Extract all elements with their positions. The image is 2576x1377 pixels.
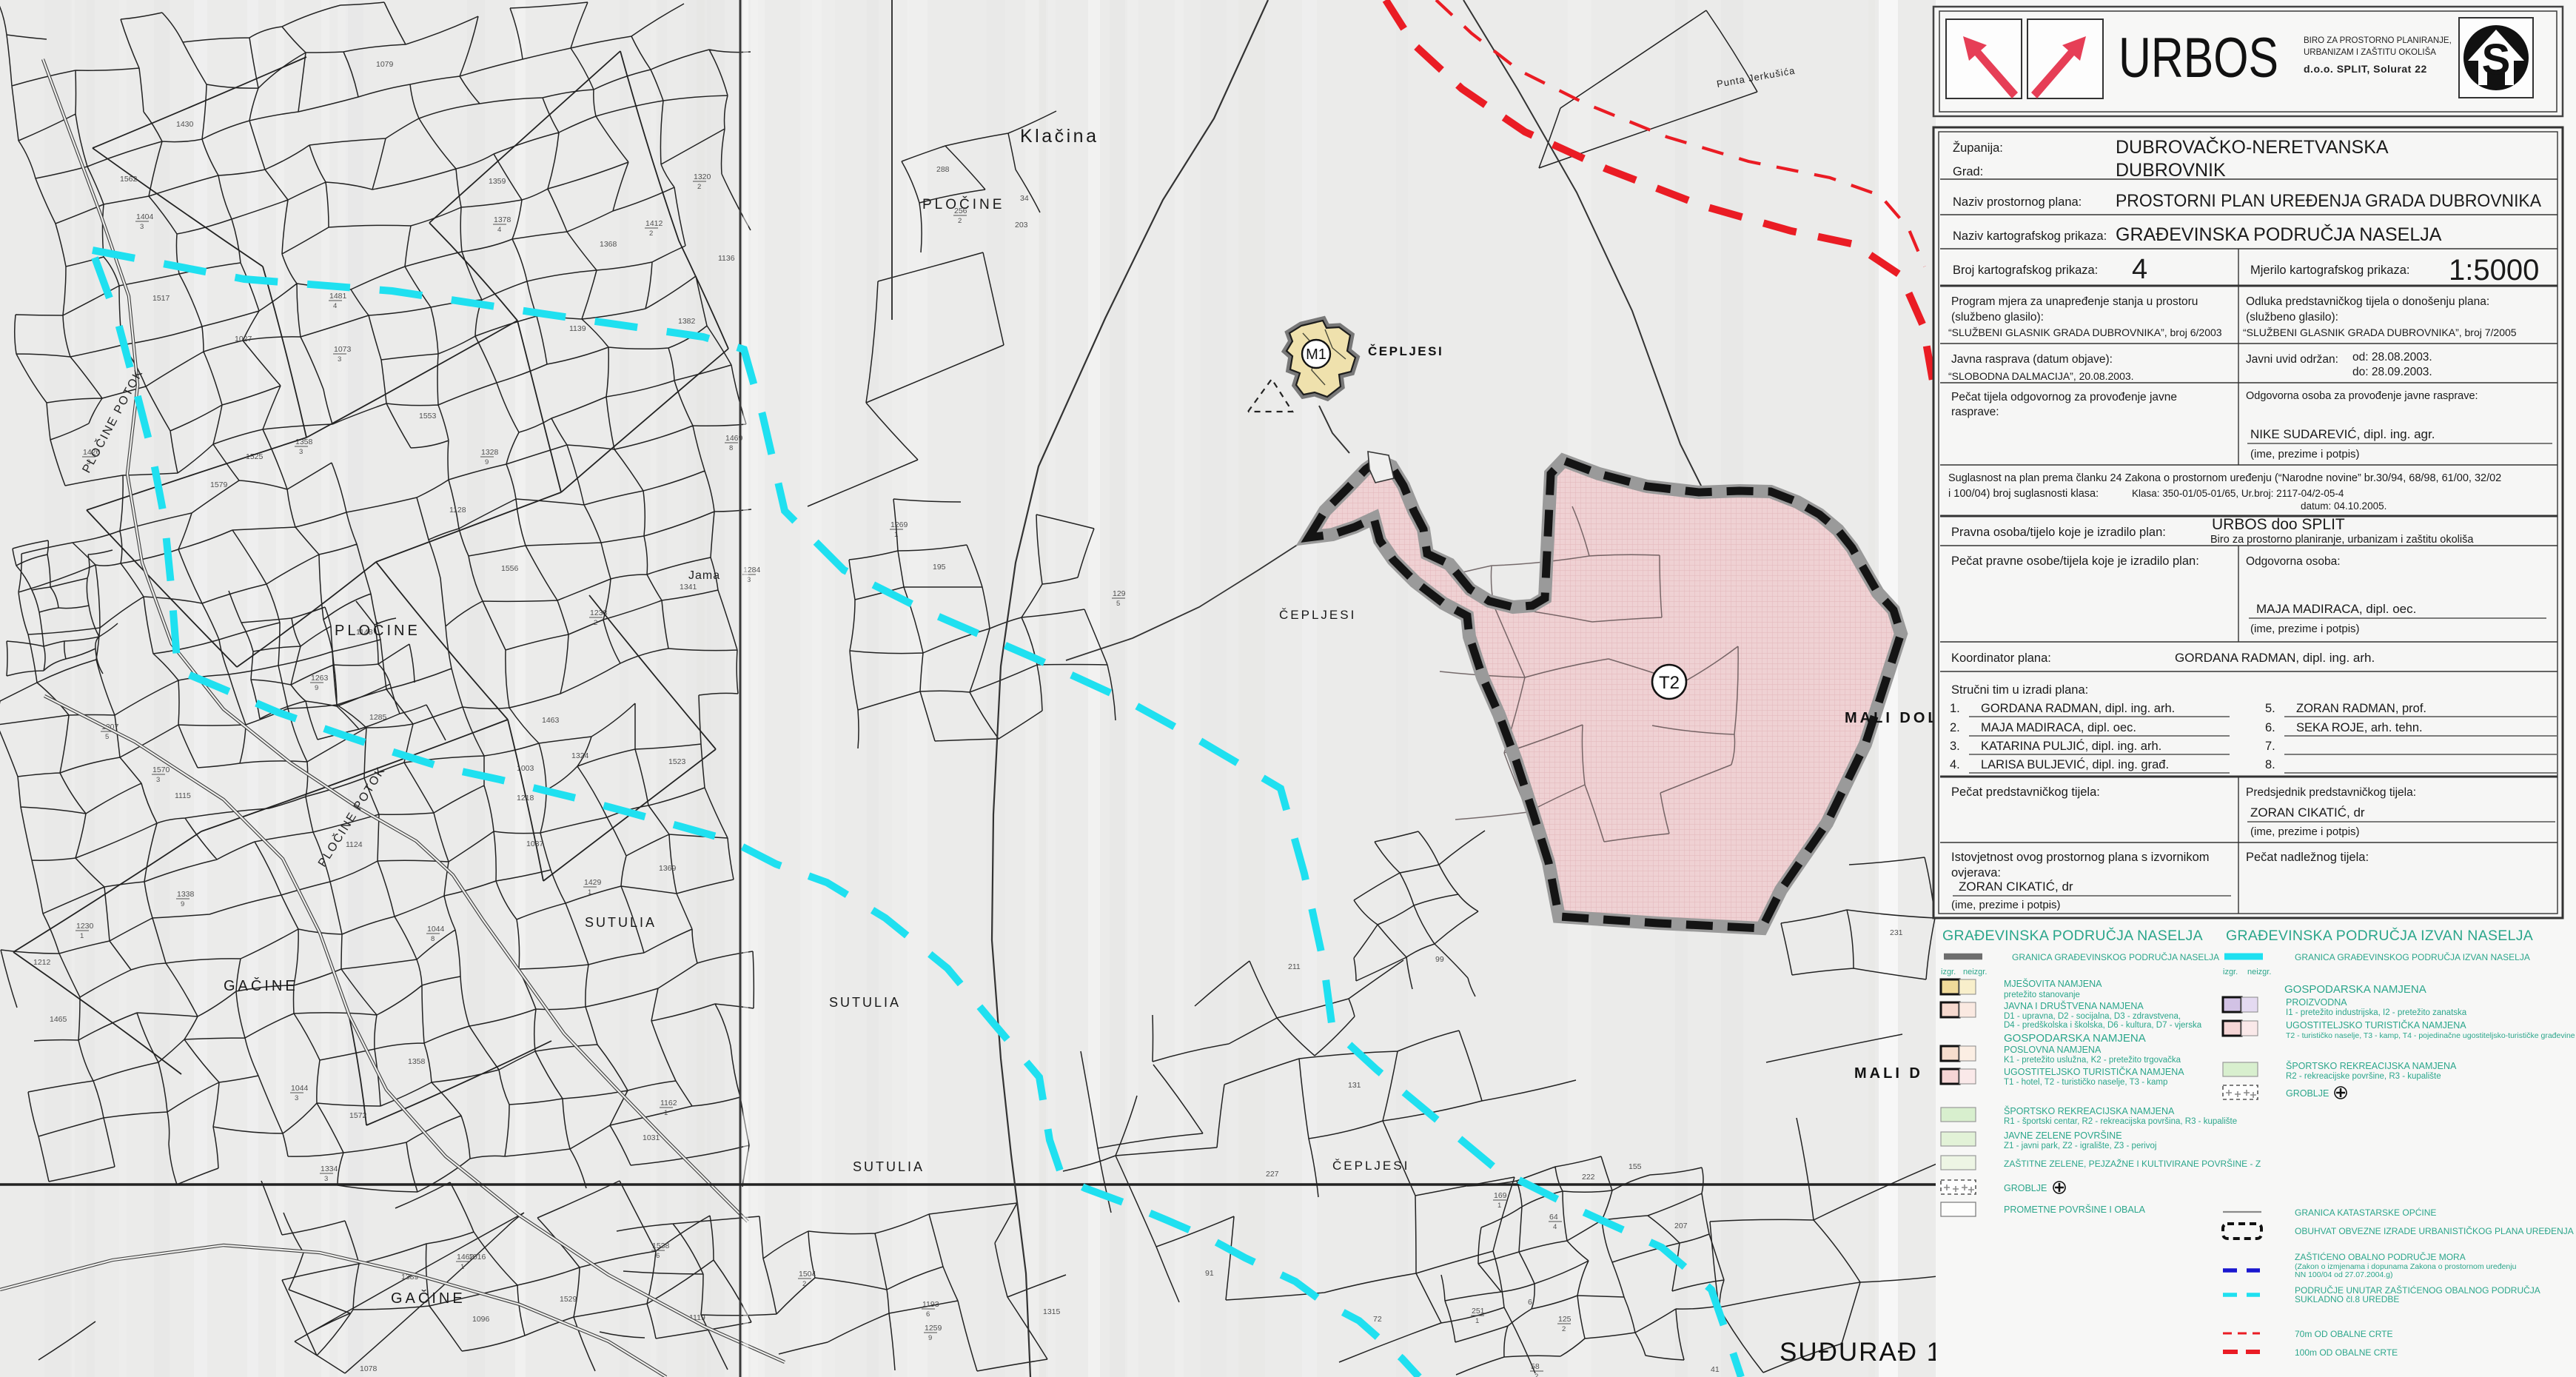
svg-text:GRANICA KATASTARSKE OPĆINE: GRANICA KATASTARSKE OPĆINE xyxy=(2295,1207,2436,1218)
svg-text:1562: 1562 xyxy=(120,175,138,184)
svg-text:1359: 1359 xyxy=(489,177,506,186)
svg-text:2: 2 xyxy=(594,619,597,627)
svg-text:1259: 1259 xyxy=(925,1324,942,1333)
svg-text:ČEPLJESI: ČEPLJESI xyxy=(1332,1159,1409,1173)
svg-text:169: 169 xyxy=(1494,1191,1507,1200)
svg-text:ovjerava:: ovjerava: xyxy=(1951,866,2001,880)
svg-text:3: 3 xyxy=(295,1094,298,1102)
svg-text:MALI DOL: MALI DOL xyxy=(1845,710,1940,726)
svg-text:1556: 1556 xyxy=(501,564,519,573)
svg-text:1368: 1368 xyxy=(600,240,617,249)
svg-text:1027: 1027 xyxy=(235,335,252,344)
svg-text:131: 131 xyxy=(1348,1081,1361,1090)
svg-text:195: 195 xyxy=(933,563,946,572)
svg-text:POSLOVNA NAMJENA: POSLOVNA NAMJENA xyxy=(2004,1045,2102,1055)
svg-text:Odluka predstavničkog tijela o: Odluka predstavničkog tijela o donošenju… xyxy=(2246,295,2489,308)
svg-text:(ime, prezime i potpis): (ime, prezime i potpis) xyxy=(1951,899,2061,911)
svg-text:pretežito stanovanje: pretežito stanovanje xyxy=(2004,991,2080,999)
svg-text:PROSTORNI PLAN UREĐENJA GRADA: PROSTORNI PLAN UREĐENJA GRADA DUBROVNIKA xyxy=(2116,191,2542,211)
svg-text:izgr.: izgr. xyxy=(2223,968,2238,976)
svg-text:58: 58 xyxy=(1531,1362,1540,1371)
svg-text:UGOSTITELJSKO TURISTIČKA NAMJE: UGOSTITELJSKO TURISTIČKA NAMJENA xyxy=(2004,1066,2184,1077)
svg-text:GRAĐEVINSKA PODRUČJA NASELJA: GRAĐEVINSKA PODRUČJA NASELJA xyxy=(1942,927,2203,944)
svg-text:1:5000: 1:5000 xyxy=(2449,254,2539,287)
svg-text:Mjerilo kartografskog prikaza:: Mjerilo kartografskog prikaza: xyxy=(2250,264,2410,277)
svg-text:1429: 1429 xyxy=(584,878,602,887)
svg-text:1320: 1320 xyxy=(694,172,711,181)
svg-text:Županija:: Županija: xyxy=(1953,141,2003,155)
svg-text:1315: 1315 xyxy=(1043,1307,1061,1316)
svg-text:UGOSTITELJSKO TURISTIČKA NAMJE: UGOSTITELJSKO TURISTIČKA NAMJENA xyxy=(2286,1019,2466,1031)
svg-text:K1 - pretežito uslužna, K2 - p: K1 - pretežito uslužna, K2 - pretežito t… xyxy=(2004,1056,2181,1065)
svg-text:9: 9 xyxy=(181,900,184,908)
svg-text:Z1 - javni park, Z2 - igrališt: Z1 - javni park, Z2 - igralište, Z3 - pe… xyxy=(2004,1142,2156,1150)
svg-text:Predsjednik predstavničkog tij: Predsjednik predstavničkog tijela: xyxy=(2246,786,2416,799)
svg-text:1465: 1465 xyxy=(50,1015,67,1024)
svg-text:GOSPODARSKA NAMJENA: GOSPODARSKA NAMJENA xyxy=(2284,983,2426,996)
svg-text:DUBROVNIK: DUBROVNIK xyxy=(2116,160,2226,181)
svg-text:rasprave:: rasprave: xyxy=(1951,406,1999,418)
svg-text:izgr.: izgr. xyxy=(1941,968,1956,976)
svg-text:SUTULIA: SUTULIA xyxy=(585,915,657,930)
svg-text:2: 2 xyxy=(1534,1373,1538,1377)
svg-text:GORDANA RADMAN, dipl. ing. ar: GORDANA RADMAN, dipl. ing. arh. xyxy=(2175,651,2375,665)
svg-text:1079: 1079 xyxy=(376,60,394,69)
svg-text:7.: 7. xyxy=(2265,740,2275,753)
svg-text:datum: 04.10.2005.: datum: 04.10.2005. xyxy=(2301,500,2387,512)
svg-text:GROBLJE: GROBLJE xyxy=(2286,1088,2329,1099)
svg-text:D1 - upravna, D2 - socijalna,: D1 - upravna, D2 - socijalna, D3 - zdrav… xyxy=(2004,1012,2181,1021)
svg-text:ČEPLJESI: ČEPLJESI xyxy=(1279,608,1356,622)
svg-text:OBUHVAT OBVEZNE IZRADE URBANIS: OBUHVAT OBVEZNE IZRADE URBANISTIČKOG PLA… xyxy=(2295,1225,2574,1236)
svg-text:GOSPODARSKA NAMJENA: GOSPODARSKA NAMJENA xyxy=(2004,1032,2146,1045)
svg-text:129: 129 xyxy=(1113,589,1126,598)
svg-text:GRANICA GRAĐEVINSKOG PODRUČJA: GRANICA GRAĐEVINSKOG PODRUČJA NASELJA xyxy=(2012,951,2219,962)
svg-text:1572: 1572 xyxy=(349,1111,367,1120)
svg-text:99: 99 xyxy=(1435,955,1444,964)
svg-text:“SLUŽBENI GLASNIK GRADA DUBROV: “SLUŽBENI GLASNIK GRADA DUBROVNIKA”, bro… xyxy=(1948,326,2222,338)
svg-text:(službeno glasilo):: (službeno glasilo): xyxy=(2246,311,2338,324)
svg-text:Grad:: Grad: xyxy=(1953,165,1983,178)
svg-text:1078: 1078 xyxy=(360,1364,378,1373)
svg-text:2: 2 xyxy=(649,229,653,238)
svg-text:Odgovorna osoba za provođenje: Odgovorna osoba za provođenje javne rasp… xyxy=(2246,390,2478,402)
svg-text:URBANIZAM I ZAŠTITU OKOLIŠA: URBANIZAM I ZAŠTITU OKOLIŠA xyxy=(2304,47,2436,57)
svg-text:1162: 1162 xyxy=(660,1099,677,1108)
svg-text:2: 2 xyxy=(697,183,701,191)
svg-text:1096: 1096 xyxy=(472,1315,490,1324)
svg-text:GRAĐEVINSKA PODRUČJA NASELJA: GRAĐEVINSKA PODRUČJA NASELJA xyxy=(2116,224,2442,245)
svg-text:Pravna osoba/tijelo koje je iz: Pravna osoba/tijelo koje je izradilo pla… xyxy=(1951,526,2166,539)
svg-text:72: 72 xyxy=(1373,1315,1382,1324)
svg-text:3.: 3. xyxy=(1950,740,1960,753)
svg-text:2.: 2. xyxy=(1950,721,1960,734)
svg-text:Javna rasprava (datum objave):: Javna rasprava (datum objave): xyxy=(1951,353,2113,366)
svg-text:ZAŠTIĆENO OBALNO PODRUČJE MORA: ZAŠTIĆENO OBALNO PODRUČJE MORA xyxy=(2295,1251,2466,1262)
svg-text:100m OD OBALNE CRTE: 100m OD OBALNE CRTE xyxy=(2295,1347,2398,1358)
svg-text:1529: 1529 xyxy=(560,1295,577,1304)
svg-text:Pečat nadležnog tijela:: Pečat nadležnog tijela: xyxy=(2246,851,2369,864)
svg-text:1369: 1369 xyxy=(659,864,677,873)
svg-text:64: 64 xyxy=(1549,1213,1558,1222)
svg-text:NIKE SUDAREVIĆ, dipl. ing. agr: NIKE SUDAREVIĆ, dipl. ing. agr. xyxy=(2250,427,2435,441)
svg-text:3: 3 xyxy=(299,448,303,456)
svg-text:GRAĐEVINSKA PODRUČJA IZVAN NAS: GRAĐEVINSKA PODRUČJA IZVAN NASELJA xyxy=(2226,927,2533,944)
svg-text:“SLOBODNA DALMACIJA”, 20.08.20: “SLOBODNA DALMACIJA”, 20.08.2003. xyxy=(1948,370,2134,382)
svg-text:neizgr.: neizgr. xyxy=(1963,968,1987,976)
svg-text:MAJA MADIRACA, dipl. oec.: MAJA MADIRACA, dipl. oec. xyxy=(2256,602,2416,616)
svg-text:R1 - športski centar, R2 - rek: R1 - športski centar, R2 - rekreacijska … xyxy=(2004,1117,2237,1126)
svg-text:1: 1 xyxy=(588,888,591,897)
svg-text:Suglasnost na plan prema člank: Suglasnost na plan prema članku 24 Zakon… xyxy=(1948,472,2501,484)
svg-text:3: 3 xyxy=(324,1175,328,1183)
svg-text:8.: 8. xyxy=(2265,758,2275,771)
svg-text:“SLUŽBENI GLASNIK GRADA DUBROV: “SLUŽBENI GLASNIK GRADA DUBROVNIKA”, bro… xyxy=(2243,326,2517,338)
svg-text:1334: 1334 xyxy=(321,1165,338,1173)
svg-text:T2 - turističko naselje, T3 -: T2 - turističko naselje, T3 - kamp, T4 -… xyxy=(2286,1031,2575,1040)
svg-text:Pečat predstavničkog tijela:: Pečat predstavničkog tijela: xyxy=(1951,785,2100,799)
svg-text:4: 4 xyxy=(1553,1223,1557,1231)
svg-text:PROIZVODNA: PROIZVODNA xyxy=(2286,997,2347,1008)
svg-text:ŠPORTSKO REKREACIJSKA NAMJENA: ŠPORTSKO REKREACIJSKA NAMJENA xyxy=(2004,1105,2175,1116)
svg-text:1579: 1579 xyxy=(210,480,228,489)
svg-text:PLOČINE: PLOČINE xyxy=(922,196,1004,212)
svg-text:Biro za prostorno planiranje,: Biro za prostorno planiranje, urbanizam … xyxy=(2210,534,2474,546)
svg-text:1412: 1412 xyxy=(645,219,663,228)
svg-text:1115: 1115 xyxy=(175,791,191,800)
svg-text:4.: 4. xyxy=(1950,758,1960,771)
svg-text:Program mjera za unapređenje s: Program mjera za unapređenje stanja u pr… xyxy=(1951,295,2198,308)
svg-text:3: 3 xyxy=(140,223,144,231)
svg-text:9: 9 xyxy=(315,684,318,692)
svg-text:1073: 1073 xyxy=(334,345,352,354)
svg-text:T1 - hotel, T2 - turističko na: T1 - hotel, T2 - turističko naselje, T3 … xyxy=(2004,1078,2167,1087)
svg-text:1538: 1538 xyxy=(652,1242,670,1250)
svg-text:203: 203 xyxy=(1015,221,1028,229)
svg-text:LARISA BULJEVIĆ, dipl. ing. g: LARISA BULJEVIĆ, dipl. ing. građ. xyxy=(1981,757,2169,771)
svg-text:Stručni tim u izradi plana:: Stručni tim u izradi plana: xyxy=(1951,683,2088,697)
svg-text:1358: 1358 xyxy=(408,1057,426,1066)
svg-text:Istovjetnost ovog prostornog p: Istovjetnost ovog prostornog plana s izv… xyxy=(1951,851,2210,864)
svg-text:SUTULIA: SUTULIA xyxy=(853,1159,925,1174)
svg-text:5: 5 xyxy=(105,733,109,741)
svg-text:5.: 5. xyxy=(2265,702,2275,715)
svg-text:ŠPORTSKO REKREACIJSKA NAMJENA: ŠPORTSKO REKREACIJSKA NAMJENA xyxy=(2286,1060,2457,1071)
svg-text:1031: 1031 xyxy=(643,1133,660,1142)
svg-text:125: 125 xyxy=(1558,1315,1572,1324)
svg-text:1382: 1382 xyxy=(678,317,696,326)
svg-text:1.: 1. xyxy=(1950,702,1960,715)
svg-text:1230: 1230 xyxy=(76,922,94,931)
svg-text:Javni uvid održan:: Javni uvid održan: xyxy=(2246,353,2338,366)
svg-text:PLOČINE: PLOČINE xyxy=(335,622,420,639)
svg-text:1328: 1328 xyxy=(481,448,499,457)
svg-text:SUTULIA: SUTULIA xyxy=(829,995,901,1010)
svg-text:1: 1 xyxy=(460,1263,464,1271)
svg-text:1517: 1517 xyxy=(152,294,170,303)
svg-text:Pečat pravne osobe/tijela koje: Pečat pravne osobe/tijela koje je izradi… xyxy=(1951,555,2199,568)
svg-text:1212: 1212 xyxy=(33,958,51,967)
svg-text:MJEŠOVITA NAMJENA: MJEŠOVITA NAMJENA xyxy=(2004,978,2102,989)
svg-text:T2: T2 xyxy=(1659,673,1680,693)
svg-text:4: 4 xyxy=(2132,254,2147,285)
svg-text:JAVNA I DRUŠTVENA NAMJENA: JAVNA I DRUŠTVENA NAMJENA xyxy=(2004,1000,2144,1011)
svg-text:1263: 1263 xyxy=(311,674,329,683)
svg-text:3: 3 xyxy=(156,776,160,784)
svg-text:GORDANA RADMAN, dipl. ing. ar: GORDANA RADMAN, dipl. ing. arh. xyxy=(1981,702,2175,715)
svg-text:do: 28.09.2003.: do: 28.09.2003. xyxy=(2352,366,2432,378)
svg-text:1378: 1378 xyxy=(494,215,511,224)
svg-text:1: 1 xyxy=(80,932,84,940)
svg-text:251: 251 xyxy=(1472,1307,1485,1316)
svg-text:1269: 1269 xyxy=(890,520,908,529)
svg-text:1404: 1404 xyxy=(136,212,154,221)
svg-text:2: 2 xyxy=(1562,1325,1566,1333)
svg-text:Naziv prostornog plana:: Naziv prostornog plana: xyxy=(1953,195,2082,209)
svg-text:I1 - pretežito industrijska, I: I1 - pretežito industrijska, I2 - pretež… xyxy=(2286,1008,2467,1017)
svg-text:207: 207 xyxy=(1674,1222,1688,1230)
svg-text:neizgr.: neizgr. xyxy=(2247,968,2271,976)
svg-text:d.o.o. SPLIT, Solurat 22: d.o.o. SPLIT, Solurat 22 xyxy=(2304,63,2427,75)
svg-text:1463: 1463 xyxy=(542,716,560,725)
svg-text:Naziv kartografskog prikaza:: Naziv kartografskog prikaza: xyxy=(1953,229,2107,243)
svg-text:1338: 1338 xyxy=(177,890,195,899)
svg-text:1341: 1341 xyxy=(680,583,697,592)
svg-text:SUKLADNO čl.8 UREDBE: SUKLADNO čl.8 UREDBE xyxy=(2295,1294,2399,1304)
svg-text:(ime, prezime i potpis): (ime, prezime i potpis) xyxy=(2250,825,2360,838)
svg-text:34: 34 xyxy=(1020,194,1029,203)
svg-text:1136: 1136 xyxy=(718,254,735,263)
svg-text:(ime, prezime i potpis): (ime, prezime i potpis) xyxy=(2250,623,2360,635)
svg-text:JAVNE ZELENE POVRŠINE: JAVNE ZELENE POVRŠINE xyxy=(2004,1130,2122,1141)
svg-text:GROBLJE: GROBLJE xyxy=(2004,1183,2047,1193)
svg-text:(službeno glasilo):: (službeno glasilo): xyxy=(1951,311,2044,324)
svg-text:od: 28.08.2003.: od: 28.08.2003. xyxy=(2352,351,2432,363)
svg-text:MALI D: MALI D xyxy=(1854,1065,1923,1082)
svg-text:1553: 1553 xyxy=(419,412,437,421)
svg-text:1238: 1238 xyxy=(590,609,608,617)
svg-text:Jama: Jama xyxy=(688,569,720,582)
svg-text:S: S xyxy=(2482,36,2511,84)
svg-text:Klačina: Klačina xyxy=(1020,126,1099,147)
svg-text:1016: 1016 xyxy=(469,1253,486,1262)
svg-text:GAČINE: GAČINE xyxy=(224,977,298,994)
svg-text:6: 6 xyxy=(926,1310,930,1319)
svg-text:DUBROVAČKO-NERETVANSKA: DUBROVAČKO-NERETVANSKA xyxy=(2116,136,2389,158)
svg-text:GAČINE: GAČINE xyxy=(391,1290,466,1307)
svg-text:R2 - rekreacijske površine, R3: R2 - rekreacijske površine, R3 - kupališ… xyxy=(2286,1072,2441,1081)
svg-text:70m OD OBALNE CRTE: 70m OD OBALNE CRTE xyxy=(2295,1329,2392,1339)
svg-text:288: 288 xyxy=(936,165,950,174)
svg-text:1430: 1430 xyxy=(176,120,194,129)
svg-text:227: 227 xyxy=(1266,1170,1279,1179)
svg-text:Odgovorna osoba:: Odgovorna osoba: xyxy=(2246,555,2341,568)
svg-text:1523: 1523 xyxy=(668,757,686,766)
svg-text:9: 9 xyxy=(928,1334,932,1342)
svg-text:3: 3 xyxy=(338,355,341,363)
svg-text:1570: 1570 xyxy=(152,765,170,774)
svg-text:155: 155 xyxy=(1629,1162,1642,1171)
svg-text:6: 6 xyxy=(656,1252,660,1260)
svg-text:Koordinator plana:: Koordinator plana: xyxy=(1951,651,2051,665)
svg-text:SUĐURAĐ 1: SUĐURAĐ 1 xyxy=(1780,1338,1942,1367)
svg-text:8: 8 xyxy=(729,444,733,452)
svg-text:SEKA ROJE, arh. tehn.: SEKA ROJE, arh. tehn. xyxy=(2296,721,2423,734)
svg-text:(ime, prezime i potpis): (ime, prezime i potpis) xyxy=(2250,448,2360,460)
svg-text:6: 6 xyxy=(1528,1298,1532,1307)
svg-text:URBOS doo SPLIT: URBOS doo SPLIT xyxy=(2212,516,2345,533)
svg-text:2: 2 xyxy=(958,217,962,225)
svg-text:1504: 1504 xyxy=(799,1270,816,1279)
svg-text:MAJA MADIRACA, dipl. oec.: MAJA MADIRACA, dipl. oec. xyxy=(1981,721,2136,734)
svg-text:9: 9 xyxy=(485,458,489,466)
svg-text:PROMETNE POVRŠINE I OBALA: PROMETNE POVRŠINE I OBALA xyxy=(2004,1204,2146,1215)
svg-text:91: 91 xyxy=(1205,1269,1214,1278)
svg-text:1044: 1044 xyxy=(291,1084,309,1093)
svg-text:1124: 1124 xyxy=(346,840,363,849)
svg-text:1: 1 xyxy=(664,1109,668,1117)
svg-text:1128: 1128 xyxy=(449,506,466,515)
svg-text:KATARINA PULJIĆ, dipl. ing. a: KATARINA PULJIĆ, dipl. ing. arh. xyxy=(1981,739,2161,753)
svg-text:4: 4 xyxy=(497,226,501,234)
svg-text:1139: 1139 xyxy=(569,324,586,333)
svg-text:1193: 1193 xyxy=(922,1300,939,1309)
svg-text:41: 41 xyxy=(1711,1365,1720,1374)
svg-text:5: 5 xyxy=(1116,600,1120,608)
svg-text:ZORAN CIKATIĆ, dr: ZORAN CIKATIĆ, dr xyxy=(1959,880,2073,894)
svg-text:231: 231 xyxy=(1890,928,1903,937)
svg-text:6.: 6. xyxy=(2265,721,2275,734)
svg-text:1044: 1044 xyxy=(427,925,445,934)
svg-text:4: 4 xyxy=(333,302,337,310)
svg-text:Pečat tijela odgovornog za pro: Pečat tijela odgovornog za provođenje ja… xyxy=(1951,391,2177,403)
svg-text:222: 222 xyxy=(1582,1173,1595,1182)
svg-text:1324: 1324 xyxy=(571,751,589,760)
svg-text:Broj kartografskog prikaza:: Broj kartografskog prikaza: xyxy=(1953,264,2098,277)
svg-text:ZORAN CIKATIĆ, dr: ZORAN CIKATIĆ, dr xyxy=(2250,805,2365,820)
svg-text:GRANICA GRAĐEVINSKOG PODRUČJA: GRANICA GRAĐEVINSKOG PODRUČJA IZVAN NASE… xyxy=(2295,951,2530,962)
svg-text:NN 100/04 od 27.07.2004.g): NN 100/04 od 27.07.2004.g) xyxy=(2295,1270,2393,1279)
svg-text:M1: M1 xyxy=(1306,346,1326,363)
svg-text:1481: 1481 xyxy=(329,292,347,301)
svg-text:ČEPLJESI: ČEPLJESI xyxy=(1368,344,1443,358)
svg-text:1: 1 xyxy=(1497,1202,1501,1210)
svg-text:D4 - predškolska i školska, D6: D4 - predškolska i školska, D6 - kultura… xyxy=(2004,1021,2202,1030)
svg-text:BIRO ZA PROSTORNO PLANIRANJE,: BIRO ZA PROSTORNO PLANIRANJE, xyxy=(2304,36,2452,45)
svg-text:8: 8 xyxy=(431,935,435,943)
svg-text:i 100/04) broj suglasnosti kla: i 100/04) broj suglasnosti klasa: xyxy=(1948,488,2099,500)
svg-text:2: 2 xyxy=(802,1280,806,1288)
svg-text:ZORAN RADMAN, prof.: ZORAN RADMAN, prof. xyxy=(2296,702,2426,715)
svg-text:1: 1 xyxy=(1475,1317,1479,1325)
svg-text:Klasa: 350-01/05-01/65, Ur.bro: Klasa: 350-01/05-01/65, Ur.broj: 2117-04… xyxy=(2132,488,2344,499)
svg-text:ZAŠTITNE ZELENE, PEJZAŽNE I KU: ZAŠTITNE ZELENE, PEJZAŽNE I KULTIVIRANE … xyxy=(2004,1158,2261,1169)
svg-text:211: 211 xyxy=(1288,962,1301,971)
svg-text:URBOS: URBOS xyxy=(2119,27,2278,90)
